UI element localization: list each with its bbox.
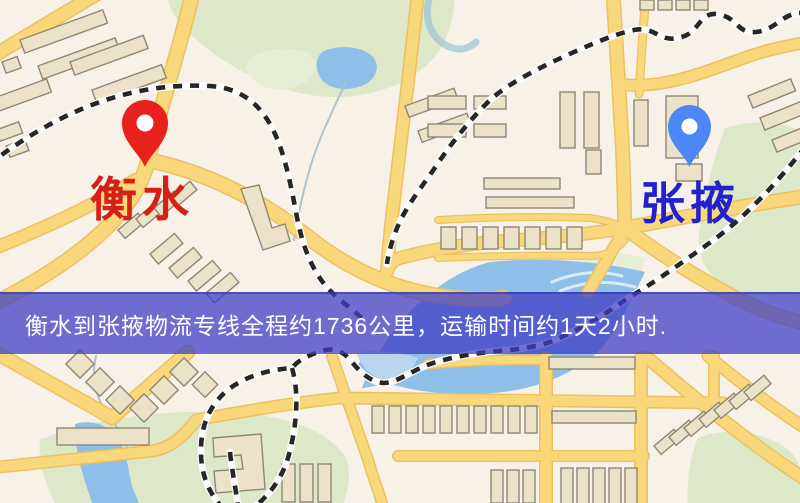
- origin-city-label: 衡水: [90, 176, 194, 223]
- route-map-image: 衡水 张掖 衡水到张掖物流专线全程约1736公里，运输时间约1天2小时.: [0, 0, 800, 503]
- map-canvas: [0, 0, 800, 503]
- route-info-banner: 衡水到张掖物流专线全程约1736公里，运输时间约1天2小时.: [0, 292, 800, 354]
- destination-city-label: 张掖: [640, 181, 740, 226]
- route-info-text: 衡水到张掖物流专线全程约1736公里，运输时间约1天2小时.: [0, 307, 667, 341]
